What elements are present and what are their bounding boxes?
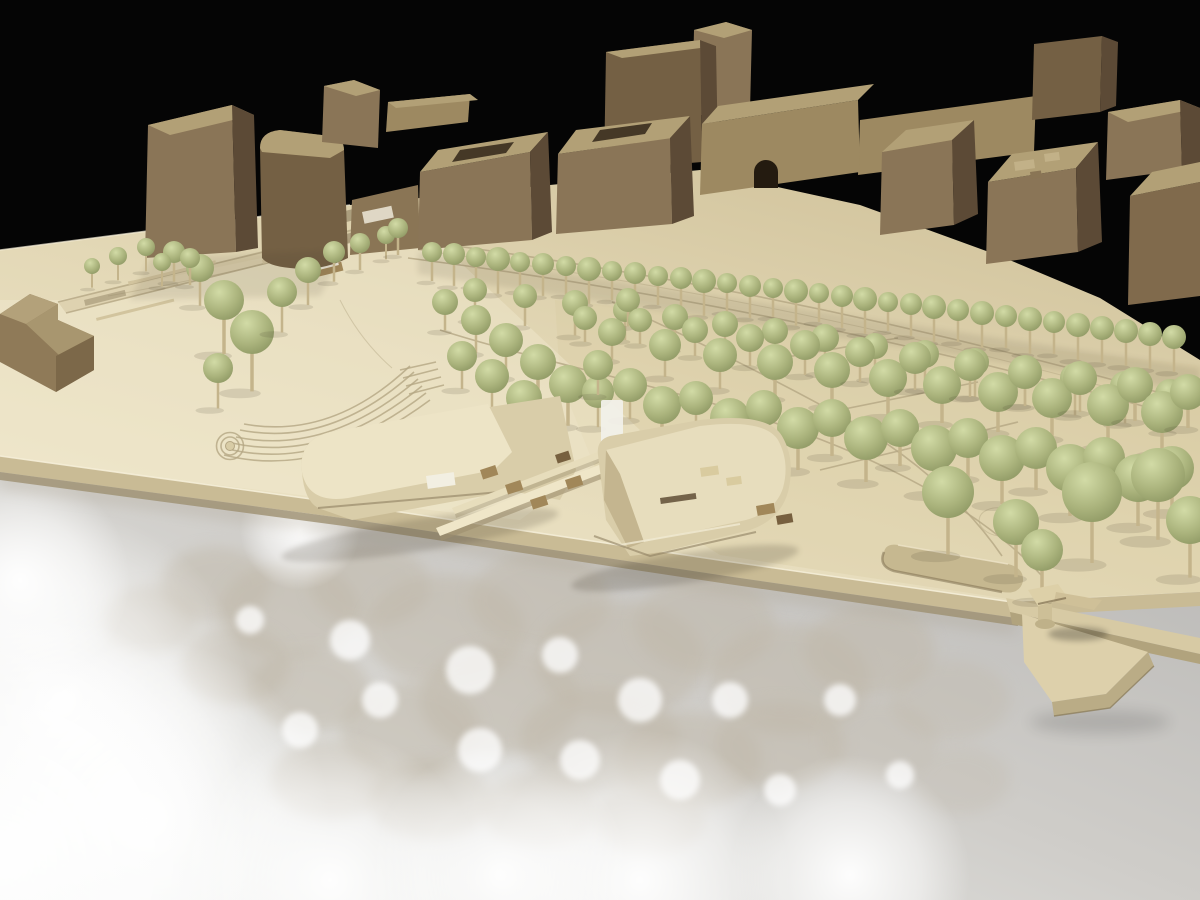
tree-shadow: [837, 479, 879, 489]
tree-shadow: [1156, 574, 1200, 585]
tree-canopy: [422, 242, 442, 262]
tree-canopy: [109, 247, 127, 265]
tree-shadow: [1155, 371, 1178, 376]
tree-shadow: [678, 355, 703, 361]
model-scene: [0, 0, 1200, 900]
tree-canopy: [845, 337, 875, 367]
tree-canopy: [1066, 313, 1090, 337]
tree-canopy: [510, 252, 530, 272]
tree-shadow: [149, 286, 166, 290]
sky-gap: [824, 684, 856, 716]
tree-canopy: [679, 381, 713, 415]
tree-canopy: [295, 257, 321, 283]
tree-canopy: [204, 280, 244, 320]
tree-shadow: [644, 375, 674, 382]
tree-shadow: [989, 347, 1010, 352]
tree-shadow: [158, 281, 179, 286]
tree-shadow: [260, 331, 289, 338]
tree-canopy: [649, 329, 681, 361]
tree-shadow: [597, 300, 616, 304]
spiral-step: [226, 442, 235, 451]
tree-canopy: [947, 299, 969, 321]
sky-gap: [560, 740, 600, 780]
tree-shadow: [807, 454, 843, 462]
tree-shadow: [105, 280, 122, 284]
tree-canopy: [1021, 529, 1063, 571]
tree-shadow: [840, 381, 869, 388]
tree-shadow: [383, 255, 402, 259]
tree-canopy: [643, 386, 681, 424]
tree-canopy: [486, 247, 510, 271]
tree-canopy: [624, 262, 646, 284]
sky-gap: [330, 620, 370, 660]
tree-canopy: [513, 284, 537, 308]
sky-gap: [458, 728, 502, 772]
tree-canopy: [489, 323, 523, 357]
tree-canopy: [520, 344, 556, 380]
arch-opening: [754, 160, 778, 188]
architectural-model-photograph: [0, 0, 1200, 900]
tree-canopy: [712, 311, 738, 337]
tree-canopy: [970, 301, 994, 325]
tree-canopy: [323, 241, 345, 263]
tree-canopy: [995, 305, 1017, 327]
tree-canopy: [432, 289, 458, 315]
tree-canopy: [809, 283, 829, 303]
tree-canopy: [628, 308, 652, 332]
tree-canopy: [757, 344, 793, 380]
tree-shadow: [196, 407, 225, 414]
tree-canopy: [899, 342, 931, 374]
tree-canopy: [350, 233, 370, 253]
tree-shadow: [949, 395, 979, 402]
sky-gap: [886, 761, 914, 789]
tree-shadow: [175, 285, 194, 289]
tree-shadow: [624, 343, 647, 348]
sky-gap: [618, 678, 662, 722]
tree-canopy: [703, 338, 737, 372]
tree-shadow: [875, 464, 911, 472]
tree-shadow: [133, 271, 150, 275]
tree-canopy: [739, 275, 761, 297]
tree-shadow: [911, 551, 960, 562]
tree-shadow: [179, 305, 206, 311]
tree-canopy: [203, 353, 233, 383]
tree-canopy: [532, 253, 554, 275]
tree-canopy: [1062, 462, 1122, 522]
tree-canopy: [682, 317, 708, 343]
tree-canopy: [853, 287, 877, 311]
tree-canopy: [180, 248, 200, 268]
tree-canopy: [831, 285, 853, 307]
tree-shadow: [1111, 419, 1145, 427]
base-shadow: [1030, 710, 1170, 734]
tree-shadow: [785, 374, 814, 381]
tree-canopy: [736, 324, 764, 352]
tree-canopy: [670, 267, 692, 289]
tree-canopy: [1018, 307, 1042, 331]
tree-canopy: [447, 341, 477, 371]
tree-canopy: [556, 256, 576, 276]
tree-canopy: [900, 293, 922, 315]
tree-canopy: [388, 218, 408, 238]
tree-shadow: [417, 281, 436, 285]
tree-shadow: [578, 394, 607, 401]
tree-shadow: [1002, 404, 1034, 411]
tree-canopy: [784, 279, 808, 303]
tree-shadow: [1164, 426, 1198, 434]
tree-shadow: [556, 335, 581, 341]
tree-shadow: [1120, 536, 1171, 548]
tree-canopy: [1043, 311, 1065, 333]
tree-shadow: [345, 270, 364, 274]
tree-canopy: [692, 269, 716, 293]
tree-canopy: [598, 318, 626, 346]
sky-gap: [282, 712, 318, 748]
tree-canopy: [878, 292, 898, 312]
tree-canopy: [463, 278, 487, 302]
tree-shadow: [427, 330, 452, 336]
tree-canopy: [466, 247, 486, 267]
sky-gap: [236, 606, 264, 634]
tree-canopy: [613, 368, 647, 402]
tree-canopy: [137, 238, 155, 256]
existing-building-tall-corner: [1032, 36, 1118, 120]
tree-canopy: [763, 278, 783, 298]
sky-gap: [712, 682, 748, 718]
tree-canopy: [475, 359, 509, 393]
tree-shadow: [441, 388, 470, 395]
tree-shadow: [894, 388, 924, 395]
tree-shadow: [643, 305, 662, 309]
tree-canopy: [717, 273, 737, 293]
tree-shadow: [289, 304, 314, 310]
tree-canopy: [602, 261, 622, 281]
sky-gap: [362, 682, 398, 718]
tree-shadow: [219, 389, 261, 399]
tree-shadow: [1057, 410, 1089, 417]
tree-shadow: [373, 259, 390, 263]
tree-canopy: [573, 306, 597, 330]
existing-courtyard-building-2: [556, 116, 694, 234]
tree-canopy: [922, 295, 946, 319]
tree-shadow: [569, 341, 592, 346]
tree-shadow: [1037, 353, 1058, 358]
sky-gap: [660, 760, 700, 800]
tree-canopy: [153, 253, 171, 271]
tree-shadow: [1008, 487, 1048, 496]
tree-canopy: [648, 266, 668, 286]
tree-canopy: [1090, 316, 1114, 340]
tree-canopy: [762, 318, 788, 344]
tree-shadow: [941, 341, 962, 346]
tree-shadow: [894, 335, 915, 340]
tree-canopy: [267, 277, 297, 307]
tree-canopy: [461, 305, 491, 335]
tree-canopy: [790, 330, 820, 360]
tree-canopy: [616, 288, 640, 312]
tree-canopy: [1138, 322, 1162, 346]
sky-gap: [764, 774, 796, 806]
sky-gap: [542, 637, 578, 673]
tree-canopy: [443, 243, 465, 265]
tree-shadow: [1106, 523, 1152, 534]
tree-canopy: [84, 258, 100, 274]
tree-canopy: [844, 416, 888, 460]
existing-building-upper-tower: [322, 80, 380, 148]
tree-canopy: [954, 349, 986, 381]
tree-canopy: [1008, 355, 1042, 389]
existing-building-left-main: [145, 105, 258, 258]
tree-canopy: [1162, 325, 1186, 349]
tree-canopy: [1114, 319, 1138, 343]
tree-canopy: [1063, 361, 1097, 395]
tree-canopy: [577, 257, 601, 281]
tree-shadow: [318, 281, 339, 286]
tree-canopy: [922, 466, 974, 518]
tree-shadow: [80, 288, 95, 292]
tree-shadow: [731, 365, 758, 371]
tree-canopy: [583, 350, 613, 380]
sky-gap: [446, 646, 494, 694]
tree-shadow: [983, 574, 1027, 584]
tree-canopy: [1131, 448, 1185, 502]
